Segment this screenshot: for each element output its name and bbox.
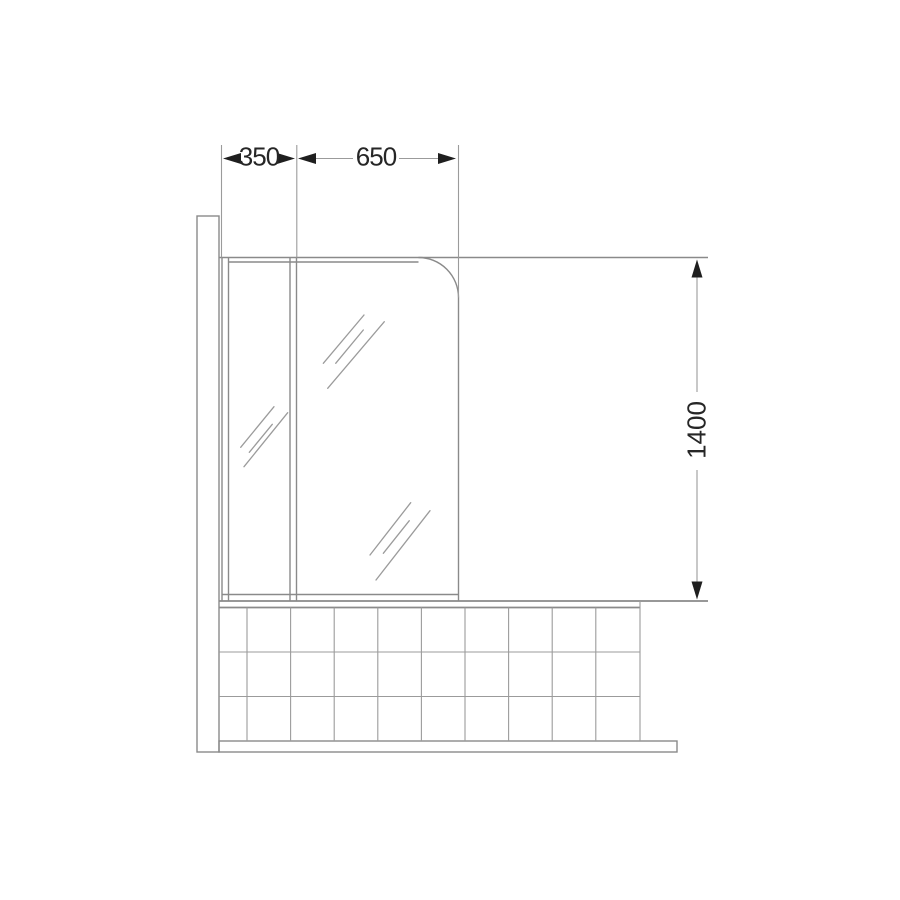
dimension-label-screen-height: 1400 — [682, 401, 713, 459]
glass-panel-curved — [419, 258, 459, 602]
dimension-label-right-panel-width: 650 — [356, 141, 396, 172]
arrow-down-icon — [692, 582, 703, 600]
arrow-right-icon — [438, 153, 456, 164]
shower-screen-panels — [219, 258, 708, 602]
dimension-label-left-panel-width: 350 — [239, 141, 279, 172]
drawing-svg — [0, 0, 900, 900]
floor-strip — [219, 741, 677, 752]
floor-hatch-rect — [219, 741, 677, 752]
panel-radius-corner — [419, 258, 459, 298]
arrow-left-icon — [298, 153, 316, 164]
glass-reflection-marks — [241, 315, 430, 580]
glass-panel-fixed — [222, 258, 229, 602]
arrow-up-icon — [692, 260, 703, 278]
wall-hatch-rect — [197, 216, 219, 752]
panel-hinge-profile — [290, 258, 297, 602]
wall-section — [197, 216, 219, 752]
arrow-right-icon — [277, 153, 295, 164]
technical-drawing-canvas: 350 650 1400 — [0, 0, 900, 900]
bath-tile-panel — [219, 601, 708, 741]
